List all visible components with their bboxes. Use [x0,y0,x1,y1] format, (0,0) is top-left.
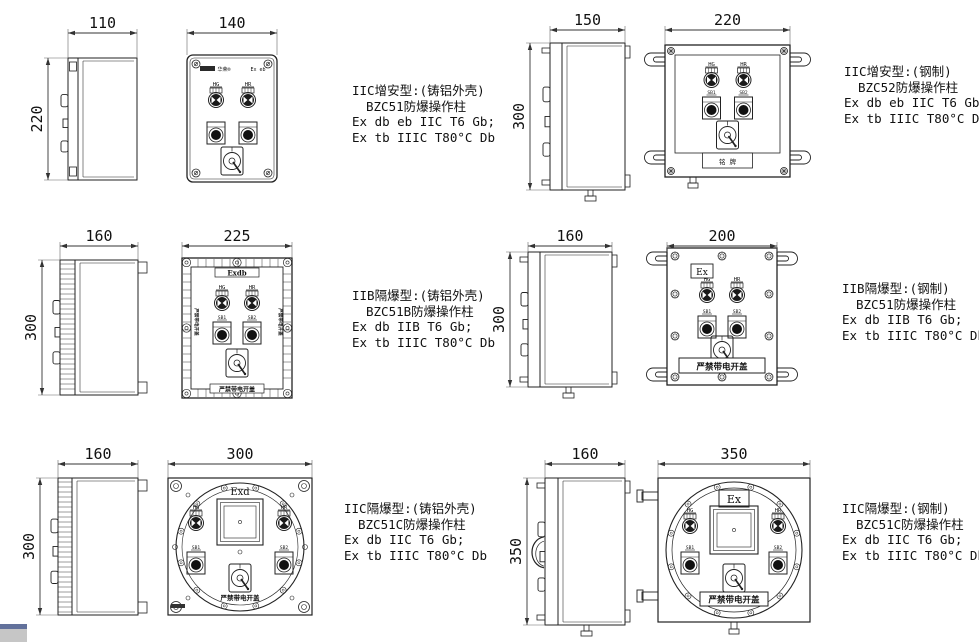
product-4-front-view: HGHRExSB1SB2严禁带电开盖 [647,248,798,385]
product-3-drawing: Exdb严禁带电开盖严禁带电开盖HGHRSB1SB2严禁带电开盖16022530… [22,227,292,398]
svg-text:严禁带电开盖: 严禁带电开盖 [220,593,261,602]
product-model-label: BZC51防爆操作柱 [352,99,495,115]
ex-rating-dust: Ex tb IIIC T80°C Db [844,111,979,127]
svg-text:300: 300 [226,445,253,463]
product-type-label: IIB隔爆型:(钢制) [842,281,979,297]
corner-artifact [0,624,27,642]
product-2-description: IIC增安型:(钢制) BZC52防爆操作柱 Ex db eb IIC T6 G… [844,64,979,126]
ex-rating-gas: Ex db IIB T6 Gb; [842,312,979,328]
product-5-side-view [51,478,147,615]
svg-text:160: 160 [556,227,583,245]
svg-text:160: 160 [571,445,598,463]
product-1-dimensions: 110140220 [28,14,277,180]
product-6-front-view: ExHGHRSB1SB2严禁带电开盖 [637,478,810,634]
product-6-side-view [532,478,630,636]
product-model-label: BZC52防爆操作柱 [844,80,979,96]
ex-rating-gas: Ex db eb IIC T6 Gb; [352,114,495,130]
svg-text:160: 160 [84,445,111,463]
product-4-description: IIB隔爆型:(钢制) BZC51防爆操作柱 Ex db IIB T6 Gb; … [842,281,979,343]
ex-rating-gas: Ex db eb IIC T6 Gb; [844,95,979,111]
svg-text:严禁带电开盖: 严禁带电开盖 [193,308,200,336]
svg-text:200: 200 [708,227,735,245]
svg-text:严禁带电开盖: 严禁带电开盖 [277,308,284,336]
ex-rating-dust: Ex tb IIIC T80°C Db [344,548,487,564]
product-2-side-view [542,43,630,201]
svg-text:300: 300 [510,103,528,130]
product-1-description: IIC增安型:(铸铝外壳) BZC51防爆操作柱 Ex db eb IIC T6… [352,83,495,145]
product-type-label: IIC增安型:(铸铝外壳) [352,83,495,99]
ex-rating-dust: Ex tb IIIC T80°C Db [352,130,495,146]
svg-text:严禁带电开盖: 严禁带电开盖 [218,386,255,394]
svg-text:Ex: Ex [696,268,708,278]
product-model-label: BZC51C防爆操作柱 [344,517,487,533]
svg-text:110: 110 [89,14,116,32]
product-3-front-view: Exdb严禁带电开盖严禁带电开盖HGHRSB1SB2严禁带电开盖 [182,258,292,398]
svg-text:Exdb: Exdb [227,269,246,278]
product-3-dimensions: 160225300 [22,227,292,395]
svg-text:150: 150 [574,11,601,29]
svg-text:华荣®: 华荣® [217,66,231,73]
svg-text:300: 300 [20,533,38,560]
product-2-front-view: HGHRSB1SB2铭 牌 [645,45,811,188]
ex-rating-dust: Ex tb IIIC T80°C Db [842,328,979,344]
product-1-side-view [61,58,137,180]
product-4-drawing: HGHRExSB1SB2严禁带电开盖160200300 [490,227,798,398]
product-3-description: IIB隔爆型:(铸铝外壳) BZC51B防爆操作柱 Ex db IIB T6 G… [352,288,495,350]
svg-text:300: 300 [22,314,40,341]
product-1-drawing: 华荣®Ex ebHGHR110140220 [28,14,277,182]
product-6-description: IIC隔爆型:(钢制) BZC51C防爆操作柱 Ex db IIC T6 Gb;… [842,501,979,563]
svg-text:Ex eb: Ex eb [250,67,265,73]
datasheet-page: 华荣®Ex ebHGHR110140220HGHRSB1SB2铭 牌150220… [0,0,979,642]
product-type-label: IIC隔爆型:(钢制) [842,501,979,517]
product-2-drawing: HGHRSB1SB2铭 牌150220300 [510,11,811,201]
ex-rating-gas: Ex db IIB T6 Gb; [352,319,495,335]
svg-text:铭 牌: 铭 牌 [719,157,736,166]
svg-text:350: 350 [507,538,525,565]
ex-rating-gas: Ex db IIC T6 Gb; [344,532,487,548]
product-model-label: BZC51C防爆操作柱 [842,517,979,533]
svg-text:220: 220 [28,105,46,132]
product-type-label: IIC增安型:(钢制) [844,64,979,80]
product-1-front-view: 华荣®Ex ebHGHR [187,55,277,182]
svg-text:严禁带电开盖: 严禁带电开盖 [707,595,760,606]
product-5-front-view: ExdHGHRSB1SB2严禁带电开盖 [168,478,312,615]
svg-text:严禁带电开盖: 严禁带电开盖 [695,362,748,373]
product-5-dimensions: 160300300 [20,445,312,615]
product-5-drawing: ExdHGHRSB1SB2严禁带电开盖160300300 [20,445,312,615]
svg-text:Exd: Exd [230,487,250,498]
product-model-label: BZC51B防爆操作柱 [352,304,495,320]
product-5-description: IIC隔爆型:(铸铝外壳) BZC51C防爆操作柱 Ex db IIC T6 G… [344,501,487,563]
ex-rating-gas: Ex db IIC T6 Gb; [842,532,979,548]
product-6-drawing: ExHGHRSB1SB2严禁带电开盖160350350 [507,445,810,636]
svg-text:Ex: Ex [727,493,742,506]
product-type-label: IIB隔爆型:(铸铝外壳) [352,288,495,304]
product-type-label: IIC隔爆型:(铸铝外壳) [344,501,487,517]
svg-text:160: 160 [85,227,112,245]
ex-rating-dust: Ex tb IIIC T80°C Db [352,335,495,351]
ex-rating-dust: Ex tb IIIC T80°C Db [842,548,979,564]
product-3-side-view [53,260,147,395]
svg-text:350: 350 [720,445,747,463]
svg-text:140: 140 [218,14,245,32]
product-4-side-view [520,252,617,398]
svg-text:225: 225 [223,227,250,245]
svg-text:220: 220 [714,11,741,29]
product-model-label: BZC51防爆操作柱 [842,297,979,313]
